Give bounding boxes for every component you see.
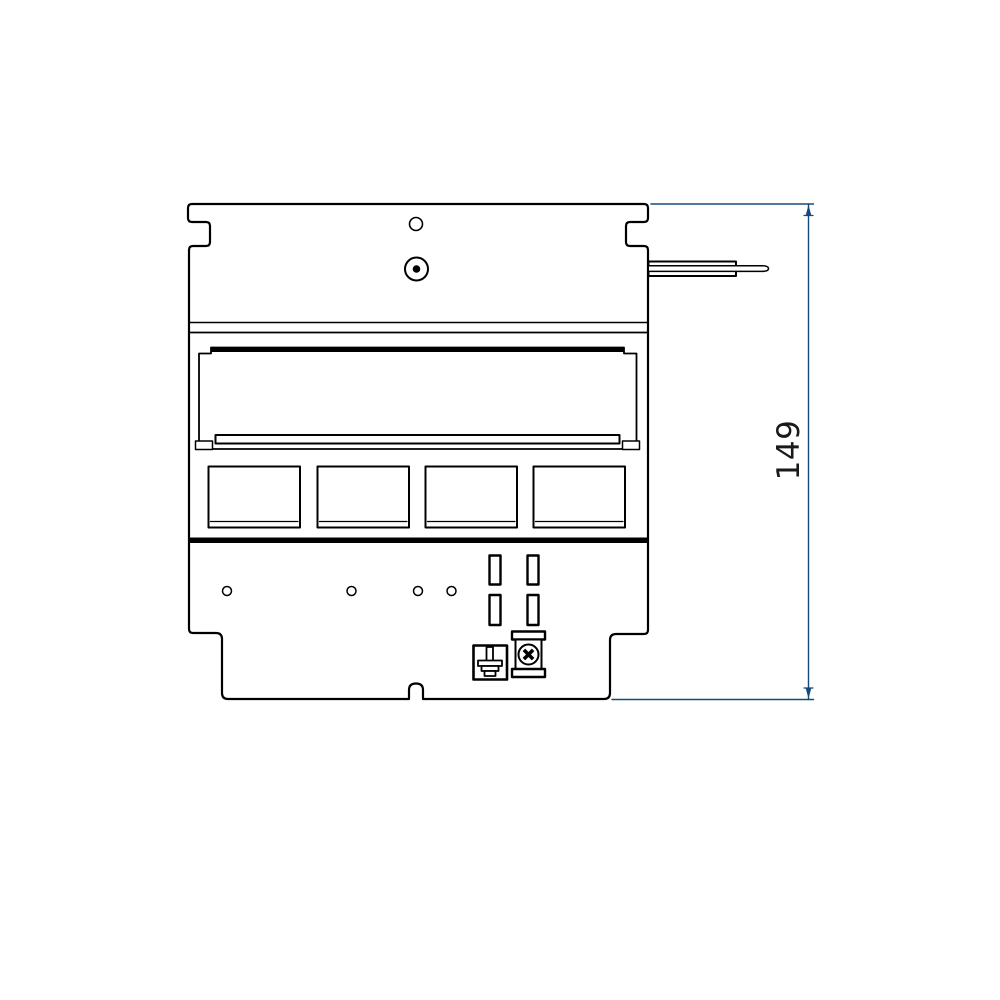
lever-rod-pin (649, 266, 769, 272)
mounting-hole-2 (347, 587, 356, 596)
earth-terminal (474, 646, 508, 680)
screw-terminal (512, 632, 545, 678)
module-cutout-4 (534, 467, 626, 528)
dimension-149: 149 (612, 204, 814, 700)
support-rail (216, 435, 620, 444)
rail-foot-left (196, 441, 213, 450)
mounting-plate-outline (188, 204, 648, 699)
dimension-arrow-bottom (806, 688, 812, 699)
module-cutout-3 (426, 467, 518, 528)
screw-terminal-top-cap (512, 632, 545, 640)
vent-slot-4 (528, 595, 539, 625)
dimension-arrow-top (806, 205, 812, 216)
module-cutout-1 (209, 467, 301, 528)
vent-slot-2 (528, 556, 539, 585)
vent-slot-1 (490, 556, 501, 585)
plate-group (188, 204, 769, 699)
drawing-page: 149 (0, 0, 1000, 1000)
mounting-hole-3 (414, 587, 423, 596)
screw-terminal-bottom-cap (512, 669, 545, 677)
earth-symbol-bar-3 (485, 671, 496, 676)
rail-foot-right (623, 441, 640, 450)
pilot-hole (410, 218, 423, 231)
dimension-label: 149 (771, 420, 807, 481)
technical-drawing-canvas: 149 (0, 0, 1000, 1000)
mounting-hole-1 (223, 587, 232, 596)
screw-grommet-center (413, 265, 421, 273)
mounting-hole-4 (447, 587, 456, 596)
cover-top-bar (211, 347, 624, 352)
module-cutout-2 (318, 467, 410, 528)
earth-symbol-stem (487, 647, 494, 661)
cover-opening (199, 348, 637, 450)
thick-divider (189, 538, 649, 544)
vent-slot-3 (490, 595, 501, 625)
module-cutouts (209, 467, 626, 528)
